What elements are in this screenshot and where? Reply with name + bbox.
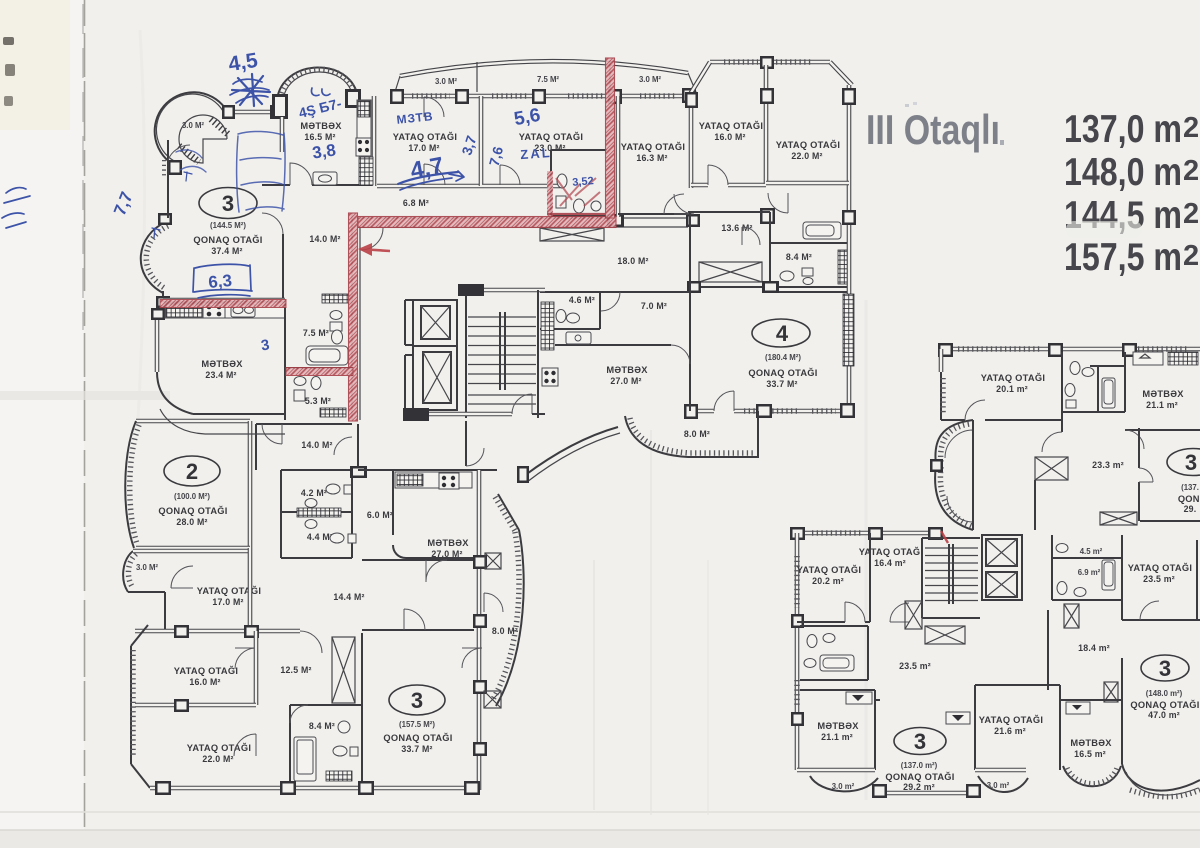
svg-text:4.2 M²: 4.2 M² <box>301 488 327 498</box>
svg-text:3: 3 <box>222 191 234 216</box>
svg-text:18.4 m²: 18.4 m² <box>1078 643 1110 653</box>
svg-text:16.0 M²: 16.0 M² <box>714 132 745 142</box>
svg-text:QONAQ OTAĞI: QONAQ OTAĞI <box>1130 699 1199 710</box>
svg-text:(157.5 М²): (157.5 М²) <box>399 720 435 729</box>
svg-text:(100.0 M²): (100.0 M²) <box>174 492 210 501</box>
svg-text:20.1 m²: 20.1 m² <box>996 384 1028 394</box>
svg-text:YATAQ OTAĞI: YATAQ OTAĞI <box>979 714 1043 725</box>
svg-text:QONAQ OTAĞI: QONAQ OTAĞI <box>158 505 227 516</box>
svg-text:23.3 m²: 23.3 m² <box>1092 460 1124 470</box>
svg-text:29.: 29. <box>1184 504 1197 514</box>
svg-text:37.4 M²: 37.4 M² <box>211 246 242 256</box>
svg-text:7.5 M²: 7.5 M² <box>303 328 329 338</box>
svg-text:MƏTBƏX: MƏTBƏX <box>427 538 469 548</box>
svg-text:YATAQ OTAĞI: YATAQ OTAĞI <box>699 120 763 131</box>
svg-text:4: 4 <box>776 321 789 346</box>
svg-text:20.2 m²: 20.2 m² <box>812 576 844 586</box>
svg-text:MƏTBƏX: MƏTBƏX <box>606 365 648 375</box>
svg-text:ZAL: ZAL <box>520 145 552 162</box>
svg-text:3: 3 <box>411 688 423 713</box>
svg-text:3: 3 <box>914 729 926 754</box>
svg-text:8.0 M²: 8.0 M² <box>684 429 710 439</box>
svg-text:23.4 M²: 23.4 M² <box>205 370 236 380</box>
svg-text:12.5 M²: 12.5 M² <box>280 665 311 675</box>
svg-text:2: 2 <box>1183 112 1199 144</box>
svg-text:16.4 m²: 16.4 m² <box>874 558 906 568</box>
svg-text:17.0 M²: 17.0 M² <box>212 597 243 607</box>
svg-text:YATAQ OTAĞI: YATAQ OTAĞI <box>776 139 840 150</box>
svg-text:3.0 m²: 3.0 m² <box>987 781 1010 790</box>
svg-text:YATAQ OTAĞI: YATAQ OTAĞI <box>1128 562 1192 573</box>
svg-text:7.5 M²: 7.5 M² <box>537 75 559 84</box>
svg-text:MƏTBƏX: MƏTBƏX <box>817 721 859 731</box>
svg-text:(180.4 M²): (180.4 M²) <box>765 353 801 362</box>
svg-text:YATAQ OTAĞI: YATAQ OTAĞI <box>797 564 861 575</box>
svg-text:3.0 M²: 3.0 M² <box>435 77 457 86</box>
svg-text:14.4 M²: 14.4 M² <box>333 592 364 602</box>
svg-text:QONAQ OTAĞI: QONAQ OTAĞI <box>748 367 817 378</box>
svg-text:28.0 M²: 28.0 M² <box>176 517 207 527</box>
svg-text:3: 3 <box>1159 656 1171 681</box>
svg-text:33.7 M²: 33.7 M² <box>766 379 797 389</box>
svg-text:29.2 m²: 29.2 m² <box>903 782 935 792</box>
svg-text:YATAQ OTAĞI: YATAQ OTAĞI <box>981 372 1045 383</box>
svg-text:14.0 M²: 14.0 M² <box>309 234 340 244</box>
svg-text:17.0 M²: 17.0 M² <box>408 143 439 153</box>
svg-text:(144.5 M²): (144.5 M²) <box>210 221 246 230</box>
svg-text:3,52: 3,52 <box>572 175 594 189</box>
svg-text:4.5 m²: 4.5 m² <box>1080 547 1103 556</box>
svg-text:QONAQ OTAĞI: QONAQ OTAĞI <box>885 771 954 782</box>
svg-text:23.5 m²: 23.5 m² <box>899 661 931 671</box>
svg-text:18.0 M²: 18.0 M² <box>617 256 648 266</box>
svg-text:(137.0 m²): (137.0 m²) <box>901 761 938 770</box>
svg-text:III Otaqlı: III Otaqlı <box>866 106 1000 153</box>
svg-text:8.4 М²: 8.4 М² <box>309 721 335 731</box>
svg-text:MƏTBƏX: MƏTBƏX <box>201 359 243 369</box>
svg-text:27.0 M²: 27.0 M² <box>610 376 641 386</box>
svg-text:YATAQ OTAĞI: YATAQ OTAĞI <box>859 546 923 557</box>
svg-text:4.4 M²: 4.4 M² <box>307 532 333 542</box>
svg-text:3.0 M²: 3.0 M² <box>639 75 661 84</box>
svg-text:8.4 M²: 8.4 M² <box>786 252 812 262</box>
svg-text:16.3 M²: 16.3 M² <box>636 153 667 163</box>
svg-text:6.0 M²: 6.0 M² <box>367 510 393 520</box>
svg-text:47.0 m²: 47.0 m² <box>1148 710 1180 720</box>
svg-text:QONAQ: QONAQ <box>1178 494 1200 504</box>
svg-text:21.6 m²: 21.6 m² <box>994 726 1026 736</box>
svg-text:157,5 m: 157,5 m <box>1064 236 1182 279</box>
svg-text:3: 3 <box>1185 450 1197 475</box>
svg-text:7.0 M²: 7.0 M² <box>641 301 667 311</box>
svg-text:14.0 M²: 14.0 M² <box>301 440 332 450</box>
svg-text:YATAQ OTAĞI: YATAQ OTAĞI <box>174 665 238 676</box>
svg-text:2: 2 <box>186 459 198 484</box>
svg-text:QONAQ OTAĞI: QONAQ OTAĞI <box>193 234 262 245</box>
svg-text:6.8 M²: 6.8 M² <box>403 198 429 208</box>
svg-text:YATAQ OTAĞI: YATAQ OTAĞI <box>519 131 583 142</box>
svg-text:21.1 m²: 21.1 m² <box>1146 400 1178 410</box>
svg-text:22.0 M²: 22.0 M² <box>791 151 822 161</box>
svg-text:3,8: 3,8 <box>311 140 337 162</box>
svg-text:22.0 M²: 22.0 M² <box>202 754 233 764</box>
svg-text:8.0 M²: 8.0 M² <box>492 626 518 636</box>
svg-text:(137.: (137. <box>1181 483 1199 492</box>
svg-text:2: 2 <box>1183 240 1199 272</box>
svg-text:16.5 m²: 16.5 m² <box>1074 749 1106 759</box>
svg-text:5.3 M²: 5.3 M² <box>305 396 331 406</box>
svg-text:148,0 m: 148,0 m <box>1064 151 1182 194</box>
svg-text:23.5 m²: 23.5 m² <box>1143 574 1175 584</box>
svg-text:YATAQ OTAĞI: YATAQ OTAĞI <box>621 141 685 152</box>
svg-text:YATAQ OTAĞI: YATAQ OTAĞI <box>393 131 457 142</box>
svg-text:4.6 M²: 4.6 M² <box>569 295 595 305</box>
svg-text:21.1 m²: 21.1 m² <box>821 732 853 742</box>
svg-text:137,0 m: 137,0 m <box>1064 108 1182 151</box>
svg-text:3.0 m²: 3.0 m² <box>832 782 855 791</box>
svg-text:2: 2 <box>1183 155 1199 187</box>
svg-text:YATAQ OTAĞI: YATAQ OTAĞI <box>187 742 251 753</box>
svg-text:6.9 m²: 6.9 m² <box>1078 568 1101 577</box>
svg-text:(148.0 m²): (148.0 m²) <box>1146 689 1183 698</box>
svg-text:MƏTBƏX: MƏTBƏX <box>1070 738 1112 748</box>
svg-text:27.0 M²: 27.0 M² <box>431 549 462 559</box>
svg-text:3.0 M²: 3.0 M² <box>136 563 158 572</box>
svg-text:16.0 M²: 16.0 M² <box>189 677 220 687</box>
svg-text:QONAQ OTAĞI: QONAQ OTAĞI <box>383 732 452 743</box>
svg-text:33.7 M²: 33.7 M² <box>401 744 432 754</box>
svg-text:MƏTBƏX: MƏTBƏX <box>1142 389 1184 399</box>
svg-text:MƏTBƏX: MƏTBƏX <box>300 121 342 131</box>
svg-text:2: 2 <box>1183 198 1199 230</box>
svg-text:4,5: 4,5 <box>227 49 260 76</box>
